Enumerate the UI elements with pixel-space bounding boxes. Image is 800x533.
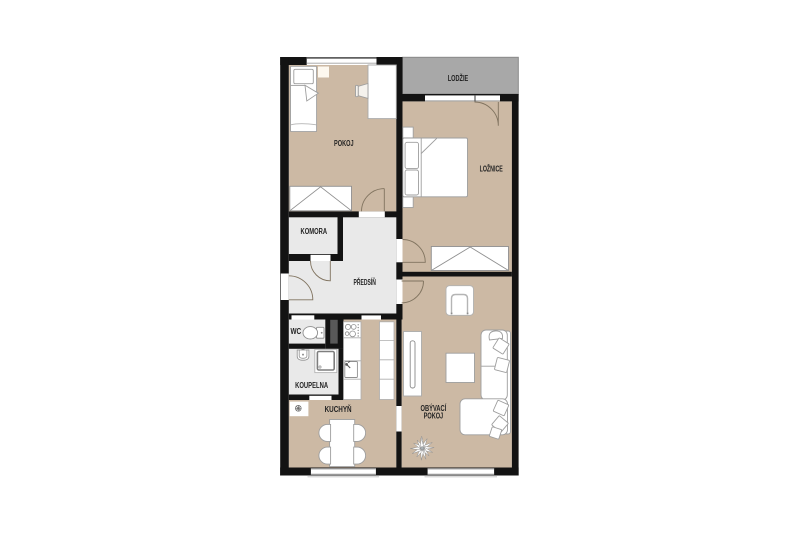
svg-text:WC: WC	[290, 327, 301, 336]
svg-text:KUCHYŇ: KUCHYŇ	[325, 405, 352, 414]
svg-text:LODŽIE: LODŽIE	[448, 74, 469, 83]
svg-text:POKOJ: POKOJ	[424, 411, 444, 420]
svg-text:KOMORA: KOMORA	[301, 227, 328, 236]
svg-text:KOUPELNA: KOUPELNA	[295, 381, 328, 390]
svg-text:LOŽNICE: LOŽNICE	[480, 164, 503, 173]
svg-text:PŘEDSÍŇ: PŘEDSÍŇ	[354, 278, 377, 287]
svg-text:POKOJ: POKOJ	[334, 139, 354, 148]
